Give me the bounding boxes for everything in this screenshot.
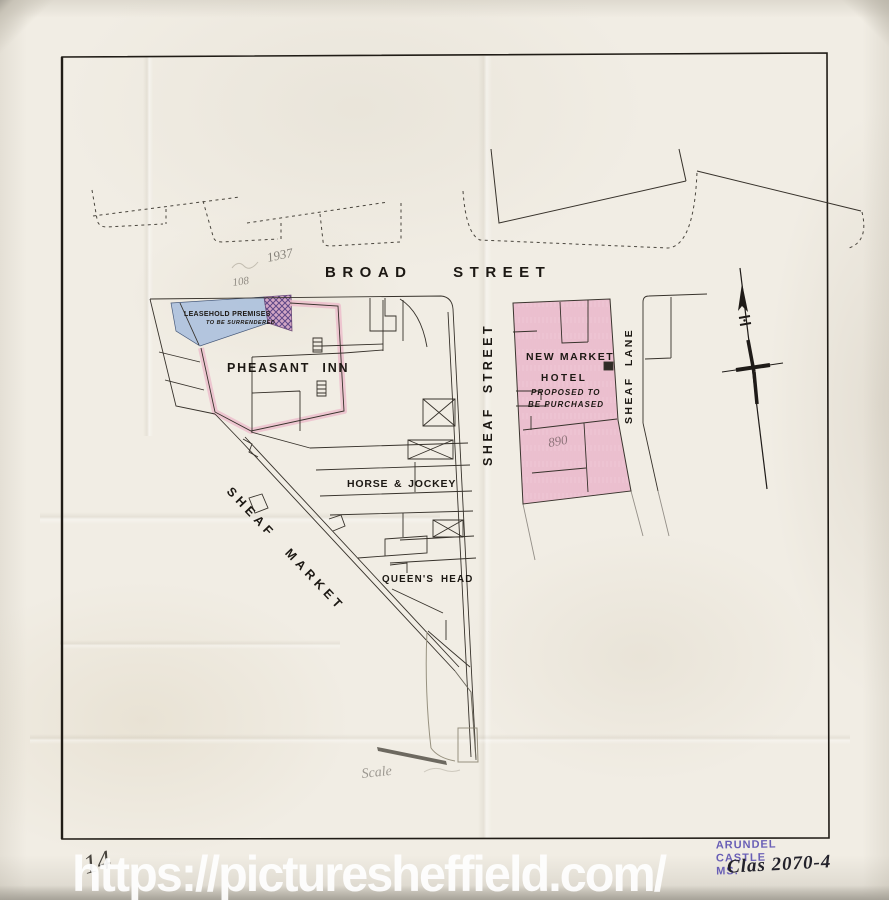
sheet-border-frame (62, 53, 829, 839)
label-to-be-surrendered: TO BE SURRENDERED (206, 320, 275, 326)
label-pheasant-inn: PHEASANT INN (227, 361, 349, 375)
label-sheaf-market: SHEAF MARKET (224, 484, 348, 614)
map-drawing: BROAD STREET SHEAF STREET SHEAF LANE SHE… (0, 0, 889, 900)
label-new-market: NEW MARKET (526, 351, 614, 363)
label-sheaf-lane: SHEAF LANE (623, 328, 635, 424)
label-broad-street: BROAD STREET (325, 264, 551, 281)
label-horse-and-jockey: HORSE & JOCKEY (347, 478, 456, 490)
pencil-annotations: 1937 108 890 Scale 14 (80, 245, 569, 880)
label-be-purchased: BE PURCHASED (528, 400, 604, 409)
pencil-date-note: 1937 (266, 245, 295, 265)
label-sheaf-street: SHEAF STREET (481, 323, 495, 466)
pencil-scale-note: Scale (361, 764, 393, 782)
watermark: https://picturesheffield.com/ (72, 845, 665, 900)
label-hotel: HOTEL (541, 373, 587, 384)
north-arrow-icon (722, 268, 783, 489)
label-queens-head: QUEEN'S HEAD (382, 574, 474, 585)
label-leasehold-premises: LEASEHOLD PREMISES (184, 311, 271, 318)
stamp-line: ARUNDEL (716, 838, 777, 852)
pencil-scale-bar (377, 747, 447, 765)
pencil-number-note: 108 (232, 275, 251, 289)
label-proposed-to: PROPOSED TO (531, 388, 601, 397)
street-corner-lines (491, 149, 861, 223)
scanned-map-sheet: BROAD STREET SHEAF STREET SHEAF LANE SHE… (0, 0, 889, 900)
